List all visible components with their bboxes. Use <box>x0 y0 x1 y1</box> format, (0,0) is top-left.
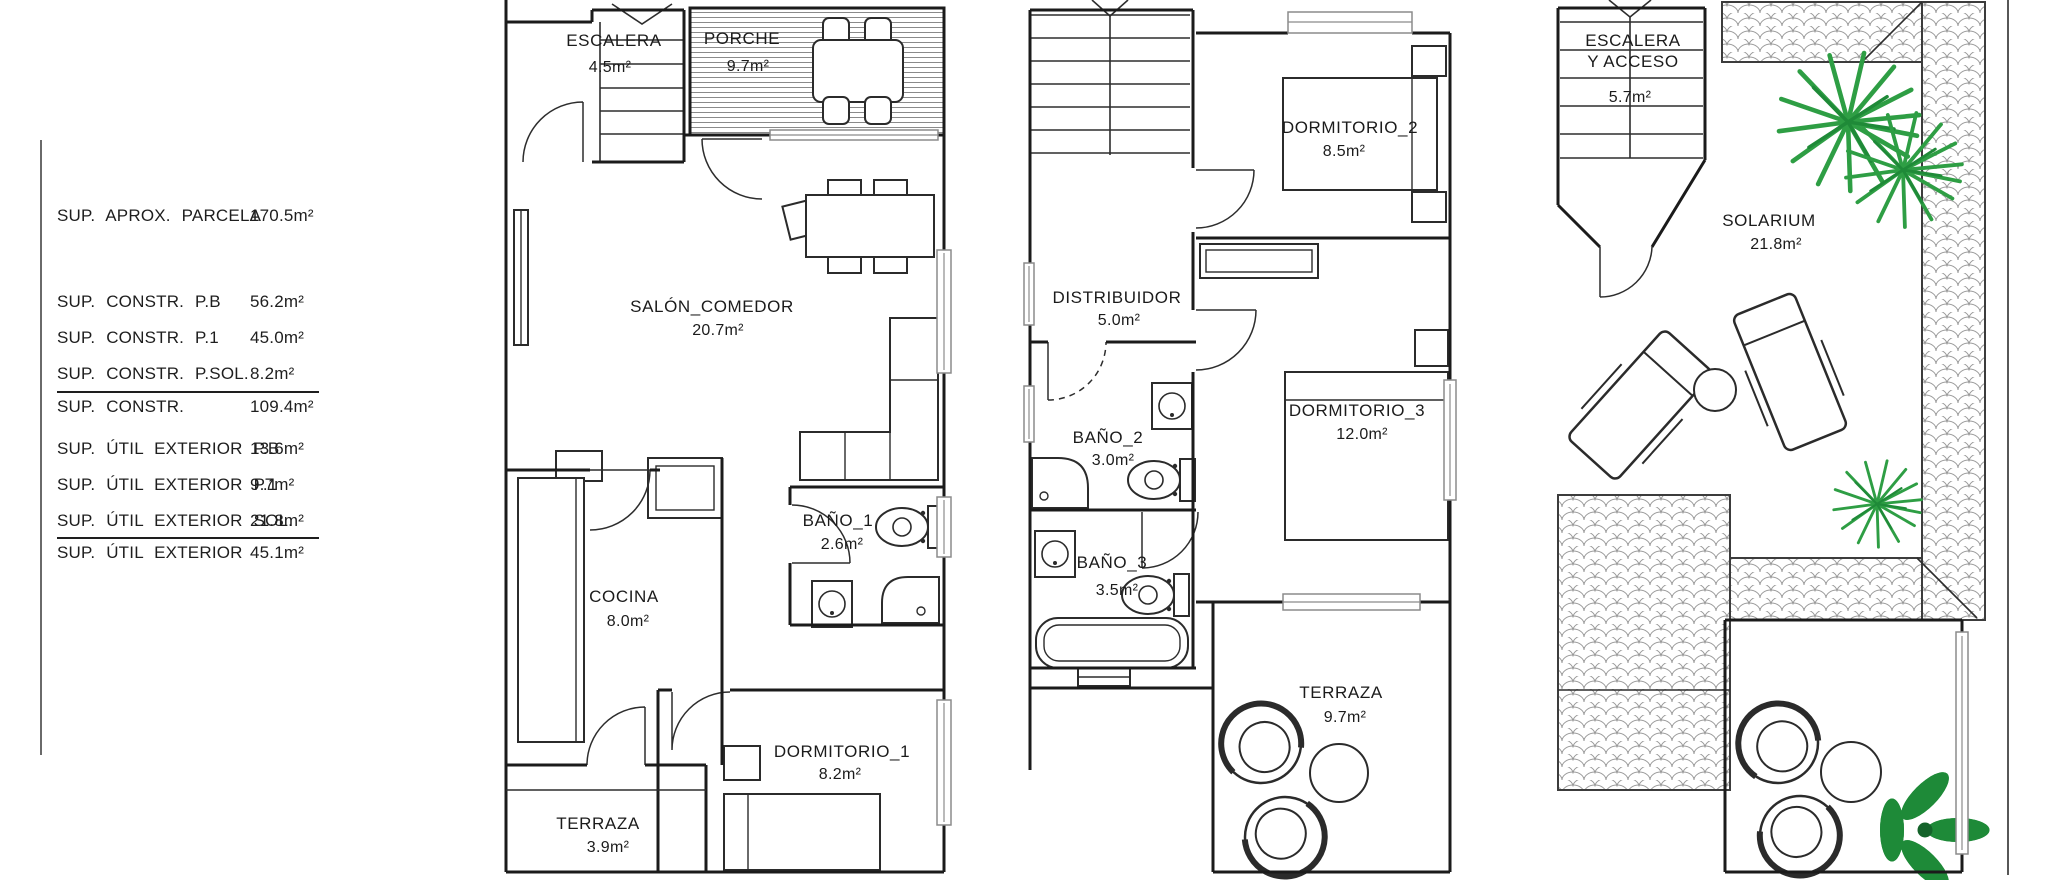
leafy-plant <box>1880 765 1990 880</box>
bed <box>1285 372 1448 540</box>
room-label-bano2: BAÑO_2 <box>1073 428 1144 447</box>
floor-plans-drawing: ESCALERA 4.5m² PORCHE 9.7m² SALÓN_COMEDO… <box>0 0 2048 880</box>
room-label-dormitorio3: DORMITORIO_3 <box>1289 401 1425 420</box>
room-label-escalera: ESCALERA <box>566 31 662 50</box>
room-label-cocina: COCINA <box>589 587 659 606</box>
room-area-terraza-pb: 3.9m² <box>587 839 630 856</box>
solarium-stairs <box>1560 0 1703 158</box>
room-area-bano1: 2.6m² <box>821 536 864 553</box>
sun-lounger <box>1725 289 1856 455</box>
room-area-terraza-p1: 9.7m² <box>1324 709 1367 726</box>
solarium-windows <box>1956 632 1968 854</box>
shower <box>1032 458 1088 508</box>
room-area-porche: 9.7m² <box>727 58 770 75</box>
wardrobe <box>648 458 722 518</box>
room-area-bano2: 3.0m² <box>1092 452 1135 469</box>
bedroom1-furniture <box>724 746 880 870</box>
room-area-escalera: 4.5m² <box>589 59 632 76</box>
room-label-escalera-acceso-2: Y ACCESO <box>1587 52 1678 71</box>
room-label-porche: PORCHE <box>704 29 780 48</box>
room-label-solarium: SOLARIUM <box>1722 211 1816 230</box>
nightstand <box>1412 46 1446 76</box>
room-area-cocina: 8.0m² <box>607 613 650 630</box>
floor-plan-sheet: SUP. APROX. PARCELA 170.5m² SUP. CONSTR.… <box>0 0 2048 880</box>
stair-direction-arrow <box>1092 0 1128 16</box>
room-label-escalera-acceso-1: ESCALERA <box>1585 31 1681 50</box>
room-area-bano3: 3.5m² <box>1096 582 1139 599</box>
nightstand <box>1412 192 1446 222</box>
room-label-bano1: BAÑO_1 <box>803 511 874 530</box>
round-chair <box>1210 692 1313 795</box>
solarium-labels: ESCALERA Y ACCESO 5.7m² SOLARIUM 21.8m² <box>1585 31 1816 253</box>
room-label-terraza-p1: TERRAZA <box>1299 683 1383 702</box>
bedroom2-furniture <box>1200 46 1446 278</box>
room-area-escalera-acceso: 5.7m² <box>1609 89 1652 106</box>
room-area-salon: 20.7m² <box>692 322 744 339</box>
room-area-distribuidor: 5.0m² <box>1098 312 1141 329</box>
first-floor-plan: DORMITORIO_2 8.5m² DISTRIBUIDOR 5.0m² BA… <box>1024 0 1456 880</box>
round-chair <box>1723 688 1832 797</box>
solarium-doors <box>1600 247 1652 297</box>
wardrobe <box>1200 244 1318 278</box>
room-area-dormitorio2: 8.5m² <box>1323 143 1366 160</box>
room-label-terraza-pb: TERRAZA <box>556 814 640 833</box>
round-table <box>1310 744 1368 802</box>
round-table <box>1694 369 1736 411</box>
room-label-distribuidor: DISTRIBUIDOR <box>1052 288 1181 307</box>
nightstand <box>1415 330 1448 366</box>
solarium-plan: ESCALERA Y ACCESO 5.7m² SOLARIUM 21.8m² <box>1558 0 2008 880</box>
ground-floor-plan: ESCALERA 4.5m² PORCHE 9.7m² SALÓN_COMEDO… <box>506 0 951 872</box>
room-label-dormitorio2: DORMITORIO_2 <box>1282 118 1418 137</box>
sofa <box>800 318 938 480</box>
first-floor-stairs <box>1030 0 1190 155</box>
kitchen-counter <box>518 478 584 742</box>
room-label-dormitorio1: DORMITORIO_1 <box>774 742 910 761</box>
room-area-dormitorio1: 8.2m² <box>819 766 862 783</box>
ground-floor-stairs <box>600 4 684 162</box>
room-label-salon: SALÓN_COMEDOR <box>630 297 794 316</box>
sun-lounger <box>1561 323 1720 486</box>
armchair <box>556 451 602 481</box>
shower <box>882 577 939 623</box>
round-table <box>1821 742 1881 802</box>
room-area-dormitorio3: 12.0m² <box>1336 426 1388 443</box>
nightstand <box>724 746 760 780</box>
stair-direction-arrow <box>612 4 672 24</box>
room-label-bano3: BAÑO_3 <box>1077 553 1148 572</box>
room-area-solarium: 21.8m² <box>1750 236 1802 253</box>
palm-plant <box>1834 461 1922 547</box>
